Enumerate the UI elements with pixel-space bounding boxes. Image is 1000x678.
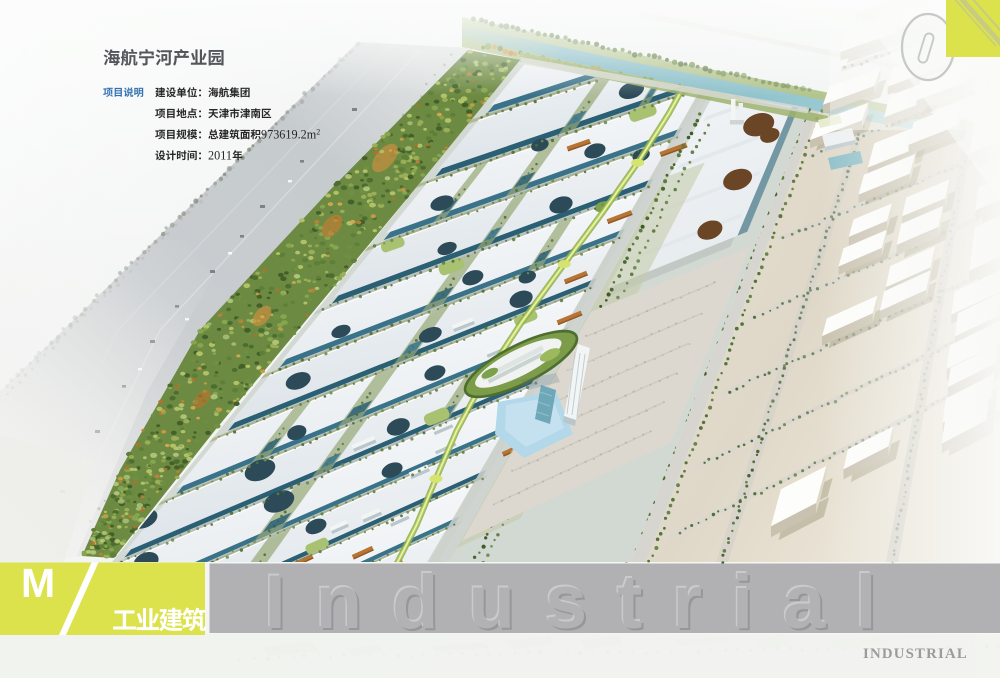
svg-text:M: M	[21, 560, 55, 606]
svg-text:INDUSTRIAL: INDUSTRIAL	[863, 646, 968, 662]
svg-text:973619.2m2: 973619.2m2	[261, 127, 320, 141]
svg-text:2011: 2011	[208, 148, 232, 162]
svg-text:Industrial: Industrial	[265, 560, 907, 645]
